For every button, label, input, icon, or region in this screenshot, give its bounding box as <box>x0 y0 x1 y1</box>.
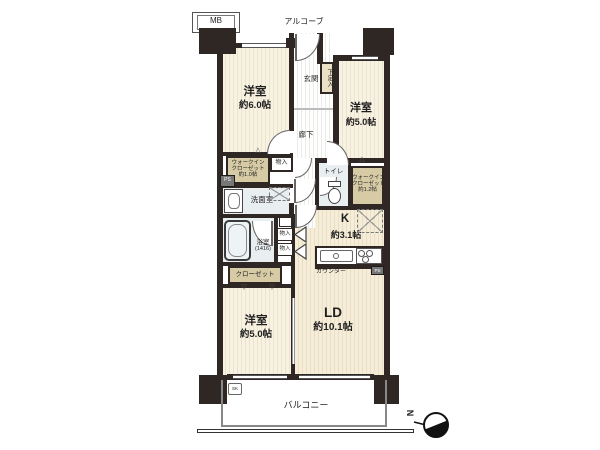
wic1-door-mark-icon: △ <box>252 147 264 155</box>
ps-kitchen-label: PS <box>371 268 384 273</box>
refrigerator-space-icon <box>357 209 383 233</box>
storage-upper-small-box <box>279 217 292 227</box>
balcony-left-edge <box>221 380 223 426</box>
slop-sink-label: SK <box>228 386 242 391</box>
wall-left <box>217 43 223 380</box>
washing-machine-drum-icon <box>228 193 240 209</box>
window-bedroom2-top <box>352 56 378 60</box>
balcony-label: バルコニー <box>274 400 338 410</box>
storage-hall-label: 物入 <box>270 160 293 167</box>
closet-door-mark2-icon: ▽ <box>266 284 278 292</box>
toilet-label: トイレ <box>321 168 346 175</box>
storage-b-label: 物入 <box>277 246 293 252</box>
wic2-line3: 約1.2帖 <box>352 187 383 193</box>
vanity-icon <box>269 187 290 201</box>
closet-label: クローゼット <box>228 271 282 278</box>
north-label: N <box>405 407 415 419</box>
wall-closet-bottom <box>217 284 293 288</box>
site-boundary-line <box>197 429 414 433</box>
stove-burner3-icon <box>362 256 369 263</box>
entrance-door-panel <box>295 34 297 61</box>
closet-door-mark1-icon: ▽ <box>238 284 250 292</box>
bathroom-size: (1416) <box>251 246 275 252</box>
alcove-label: アルコーブ <box>281 18 327 27</box>
kitchen-name: K <box>337 213 353 226</box>
storage-a-label: 物入 <box>277 231 293 237</box>
bedroom1-size: 約6.0帖 <box>227 101 283 112</box>
entrance-step-line <box>294 108 333 110</box>
ps-left-label: PS <box>220 178 235 184</box>
folding-door-icon <box>293 226 307 260</box>
sliding-door-bedroom3 <box>292 298 295 364</box>
living-dining-name: LD <box>313 305 353 320</box>
wall-entrance-left-a <box>289 33 294 132</box>
balcony-right-edge <box>385 380 387 426</box>
bedroom3-name: 洋室 <box>231 315 281 328</box>
bedroom1-name: 洋室 <box>230 86 280 99</box>
bedroom2-size: 約5.0帖 <box>334 117 388 127</box>
bedroom2-name: 洋室 <box>336 102 386 114</box>
living-dining-size: 約10.1帖 <box>305 322 361 333</box>
bathtub-inner-icon <box>228 224 247 257</box>
toilet-tank-icon <box>328 181 341 187</box>
floor-plan: MB アルコーブ 玄関 下足入 洋室 約6.0帖 洋室 約5.0帖 廊下 <box>0 0 600 450</box>
window-living-dining <box>299 375 370 379</box>
wall-top-stub <box>222 43 242 48</box>
wall-toilet-left <box>315 163 319 210</box>
column-top-right <box>363 28 394 55</box>
hall-ld-door-panel <box>295 205 297 228</box>
shoe-cabinet-label: 下足入 <box>322 64 332 92</box>
wic2-door-mark-icon: △ <box>356 156 368 164</box>
bedroom3-size: 約5.0帖 <box>228 330 284 341</box>
meter-box-label: MB <box>197 17 235 26</box>
counter-label: カウンター <box>316 269 356 276</box>
window-bedroom3 <box>233 375 287 379</box>
window-bedroom1-top <box>242 43 288 48</box>
kitchen-sink-drain-icon <box>333 253 339 259</box>
hallway-label: 廊下 <box>292 131 320 139</box>
toilet-bowl-icon <box>328 188 341 204</box>
balcony-bottom-edge <box>221 425 387 427</box>
washroom-door-panel <box>294 179 296 203</box>
